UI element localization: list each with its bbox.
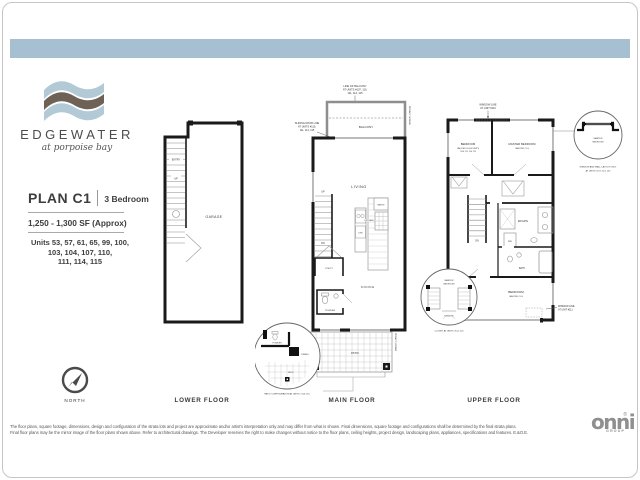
- entry-label: ENTRY: [172, 158, 181, 161]
- bedroom2-label: BEDROOM: [461, 142, 476, 146]
- garage-label: GARAGE: [206, 215, 223, 219]
- living-label: LIVING: [351, 185, 366, 189]
- lower-outer-walls: [165, 123, 242, 322]
- privacy-screen-patio-right: PRIVACY SCREEN: [394, 333, 397, 352]
- main-floor-label: MAIN FLOOR: [329, 397, 376, 404]
- bedroom3-sub: VAULTED CLG: [509, 295, 523, 298]
- window-note-right-2: AT UNIT #111: [558, 309, 573, 312]
- balcony-walls: [327, 102, 405, 137]
- dw-label: D/W: [358, 233, 362, 235]
- plan-name: PLAN C1: [28, 190, 91, 206]
- bedroom2-sub1: VAULTED CLG AT UNITS: [457, 147, 479, 150]
- master-bedroom-label: MASTER BEDROOM: [509, 142, 537, 146]
- plan-units-line1: Units 53, 57, 61, 65, 99, 100,: [26, 238, 134, 248]
- closet-inset-detail: MASTER BEDROOM ENSUITE: [421, 269, 478, 325]
- inset1-master-1: MASTER: [445, 279, 454, 282]
- main-dn-label: DN: [321, 242, 325, 245]
- dining-label: DINING: [361, 285, 375, 289]
- inset1-caption: CLOSET AT UNITS #114, 115: [435, 330, 465, 333]
- plan-title-divider: [97, 190, 98, 206]
- upper-dn-label: DN: [475, 241, 479, 243]
- onni-trademark: ®: [623, 412, 627, 418]
- balcony-note-3: 111, 114, 115: [347, 91, 363, 95]
- balcony-label: BALCONY: [359, 125, 373, 129]
- bedroom2-sub2: #110, 111, 114, 115: [460, 151, 476, 153]
- upper-floor-plan: WINDOW LINE AT UNIT #110 DN ENSUITE W/D: [420, 85, 635, 405]
- north-compass: NORTH: [57, 363, 95, 407]
- inset2-master-2: BEDROOM: [593, 142, 604, 144]
- brand-name: EDGEWATER: [12, 127, 142, 142]
- header-accent-bar: [10, 39, 630, 58]
- plan-type: 3 Bedroom: [104, 194, 148, 206]
- rule-1: [28, 212, 124, 213]
- bedroom3-label: BEDROOM: [508, 290, 524, 294]
- window-note-top-2: AT UNIT #110: [480, 107, 496, 110]
- master-bedroom-sub: VAULTED CLG: [515, 147, 529, 150]
- disclaimer-line-2: Final floor plans may be the mirror imag…: [10, 430, 588, 436]
- plan-title-row: PLAN C1 3 Bedroom: [28, 190, 149, 206]
- main-floor-plan: LINE OF BALCONY AT UNITS #107, 110, 111,…: [255, 80, 420, 405]
- inset2-caption-2: AT UNITS #107, 114, 115: [586, 170, 611, 173]
- inset-powder-label: POWDER: [272, 343, 282, 345]
- kitchen-label: KITCHEN: [364, 220, 374, 222]
- plan-units-line2: 103, 104, 107, 110,: [26, 248, 134, 258]
- north-arrow-icon: [68, 373, 82, 387]
- brand-waves-icon: [42, 76, 106, 126]
- lower-floor-plan: ENTRY UP GARAGE LOWER FLOOR: [158, 110, 258, 410]
- plan-size: 1,250 - 1,300 SF (Approx): [28, 218, 127, 228]
- up-label: UP: [174, 177, 178, 180]
- inset1-master-2: BEDROOM: [444, 284, 455, 286]
- main-up-label: UP: [321, 191, 325, 194]
- onni-logo: onni ® GROUP: [591, 412, 631, 438]
- patio-note: PATIO CONFIGURATION AT UNITS #114, 115: [264, 393, 310, 396]
- balcony-note-1: LINE OF BALCONY: [343, 84, 366, 88]
- powder-label: POWDER: [325, 310, 335, 312]
- upper-floor-label: UPPER FLOOR: [467, 397, 520, 404]
- wd-label: W/D: [508, 241, 513, 243]
- plan-units-line3: 111, 114, 115: [26, 257, 134, 267]
- privacy-screen-balcony: PRIVACY SCREEN: [408, 106, 411, 126]
- inset2-caption-1: WINDOW AND WALL LAYOUT ONLY: [580, 166, 617, 169]
- north-label: NORTH: [64, 398, 85, 403]
- inset2-master-1: MASTER: [594, 137, 603, 140]
- inset-patio-label: PATIO: [288, 371, 294, 374]
- ensuite-label: ENSUITE: [518, 221, 528, 223]
- pantry-label: PANTRY: [377, 204, 385, 207]
- disclaimer: The floor plans, square footage, dimensi…: [10, 424, 588, 437]
- sliding-note-3: 111, 114, 115: [300, 129, 315, 132]
- utility-label: UTILITY: [325, 268, 334, 270]
- plan-units: Units 53, 57, 61, 65, 99, 100, 103, 104,…: [26, 238, 134, 267]
- bath-label: BATH: [519, 267, 525, 270]
- window-inset-detail: MASTER BEDROOM: [553, 111, 622, 159]
- patio-label: PATIO: [351, 351, 360, 355]
- utility-walls: [315, 258, 343, 276]
- patio-inset-detail: POWDER DINING PATIO: [255, 323, 320, 389]
- onni-logo-sub: GROUP: [606, 429, 625, 433]
- kitchen-island: [355, 208, 366, 252]
- inset-dining-label: DINING: [301, 354, 309, 356]
- lower-floor-label: LOWER FLOOR: [175, 397, 230, 404]
- brand-tagline: at porpoise bay: [12, 143, 142, 153]
- rule-2: [28, 232, 124, 233]
- balcony-note-2: AT UNITS #107, 110,: [343, 88, 368, 92]
- wd-box: [504, 233, 516, 247]
